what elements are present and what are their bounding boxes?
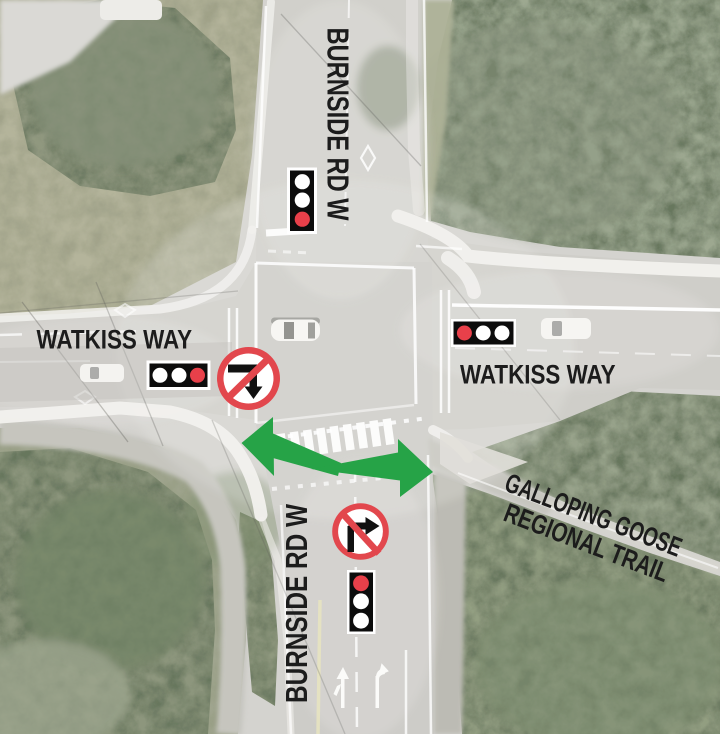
svg-text:WATKISS WAY: WATKISS WAY [37, 325, 193, 354]
svg-text:WATKISS WAY: WATKISS WAY [460, 361, 616, 390]
svg-text:BURNSIDE RD W: BURNSIDE RD W [321, 28, 356, 221]
svg-text:BURNSIDE RD W: BURNSIDE RD W [279, 503, 313, 703]
